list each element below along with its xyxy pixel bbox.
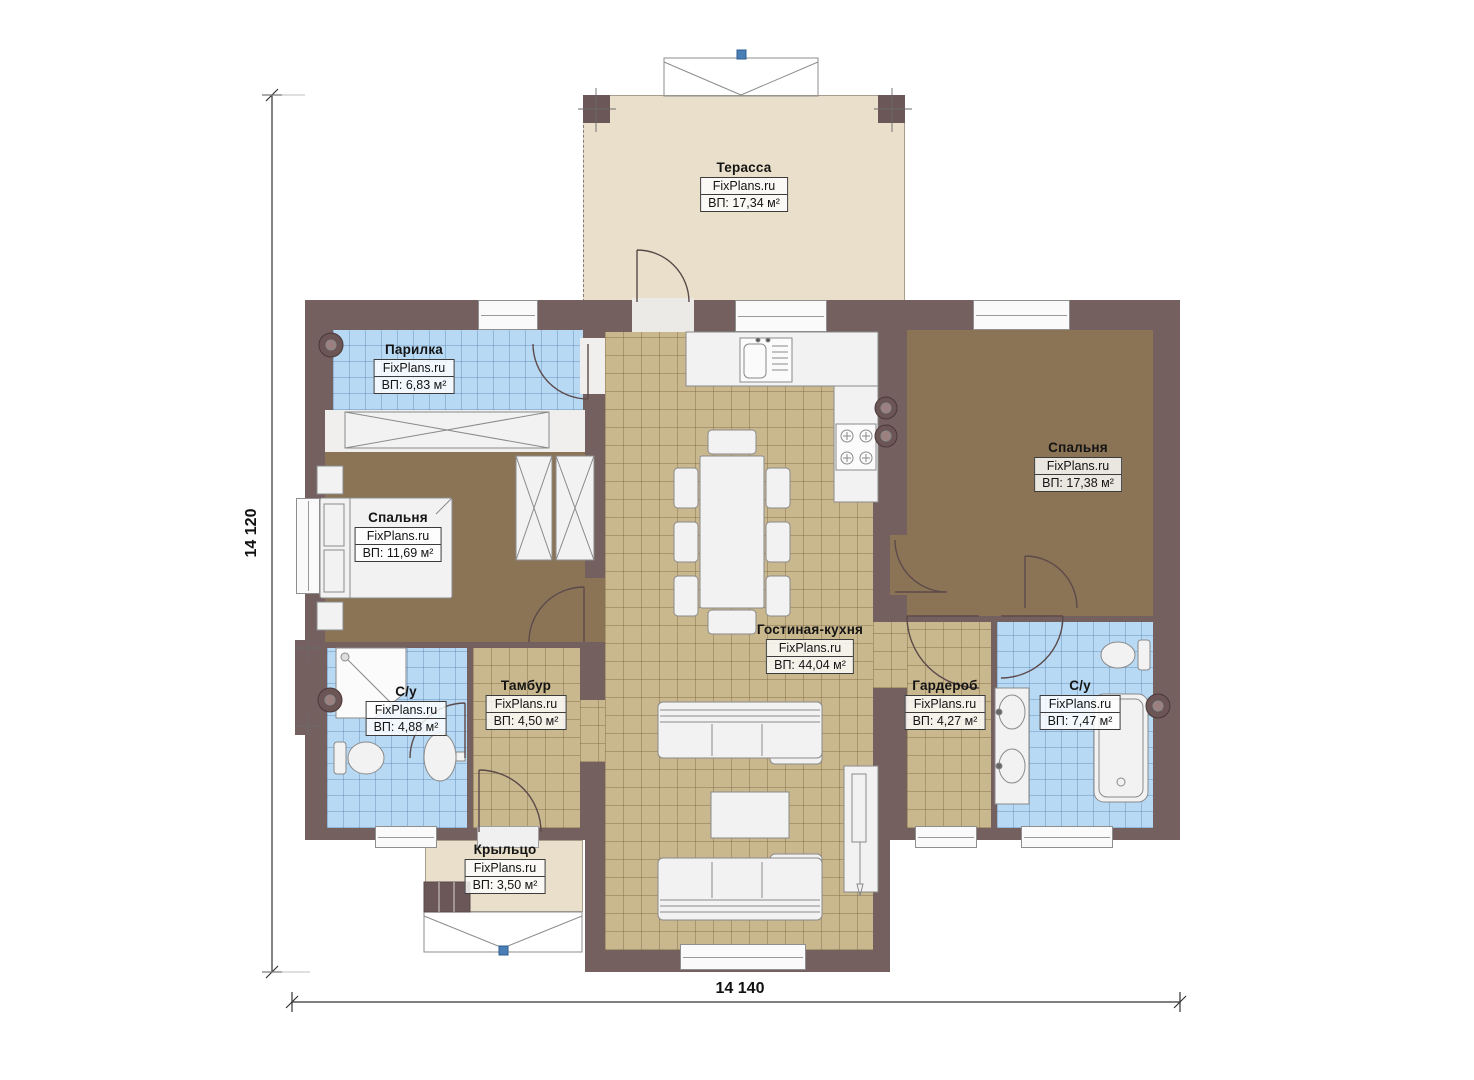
room-name: Крыльцо [465, 842, 546, 857]
room-name: Парилка [374, 342, 455, 357]
room-area: ВП: 7,47 м² [1041, 712, 1120, 729]
terrace-pillar-left [583, 95, 610, 123]
window-living-bottom [680, 944, 806, 970]
wall-protrusion [295, 640, 325, 735]
room-area: ВП: 3,50 м² [466, 876, 545, 893]
porch-canopy [424, 912, 582, 955]
room-area: ВП: 17,34 м² [701, 194, 787, 211]
room-label-bathroom-right: С/у FixPlans.ru ВП: 7,47 м² [1040, 678, 1121, 730]
room-label-tambour: Тамбур FixPlans.ru ВП: 4,50 м² [486, 678, 567, 730]
opening-steam-corridor [580, 338, 605, 394]
window-bathroom-right [1021, 826, 1113, 848]
window-wardrobe [915, 826, 977, 848]
room-tambour [473, 648, 580, 828]
window-kitchen [735, 300, 827, 332]
room-label-bathroom-left: С/у FixPlans.ru ВП: 4,88 м² [366, 684, 447, 736]
opening-bedroom-left-door [580, 578, 605, 642]
floor-plan: 14 120 14 140 Терасса FixPlans.ru ВП: 17… [0, 0, 1474, 1080]
opening-bedroom-right-door [890, 535, 907, 595]
brand-watermark: FixPlans.ru [356, 528, 441, 544]
brand-watermark: FixPlans.ru [466, 860, 545, 876]
opening-tambour-living [580, 700, 605, 762]
room-area: ВП: 11,69 м² [356, 544, 441, 561]
room-name: Гостиная-кухня [757, 622, 863, 637]
room-name: Спальня [355, 510, 442, 525]
room-name: С/у [366, 684, 447, 699]
brand-watermark: FixPlans.ru [367, 702, 446, 718]
terrace-door-opening [632, 298, 694, 332]
room-label-wardrobe: Гардероб FixPlans.ru ВП: 4,27 м² [905, 678, 986, 730]
room-bathroom-left [327, 648, 467, 828]
window-bathroom-left [375, 826, 437, 848]
terrace-pillar-right [878, 95, 905, 123]
room-name: Терасса [700, 160, 788, 175]
window-bedroom-right [973, 300, 1070, 330]
room-label-bedroom-right: Спальня FixPlans.ru ВП: 17,38 м² [1034, 440, 1122, 492]
room-area: ВП: 44,04 м² [767, 656, 853, 673]
brand-watermark: FixPlans.ru [767, 640, 853, 656]
dimension-height-label: 14 120 [243, 503, 261, 563]
window-top-left [478, 300, 538, 330]
room-area: ВП: 17,38 м² [1035, 474, 1121, 491]
brand-watermark: FixPlans.ru [701, 178, 787, 194]
window-bedroom-left [296, 498, 320, 594]
brand-watermark: FixPlans.ru [1035, 458, 1121, 474]
room-area: ВП: 4,27 м² [906, 712, 985, 729]
opening-hall-living [873, 622, 907, 688]
room-area: ВП: 6,83 м² [375, 376, 454, 393]
room-label-steam: Парилка FixPlans.ru ВП: 6,83 м² [374, 342, 455, 394]
room-label-living-kitchen: Гостиная-кухня FixPlans.ru ВП: 44,04 м² [757, 622, 863, 674]
room-area: ВП: 4,88 м² [367, 718, 446, 735]
brand-watermark: FixPlans.ru [1041, 696, 1120, 712]
terrace-canopy [664, 50, 818, 96]
room-name: Тамбур [486, 678, 567, 693]
room-name: Спальня [1034, 440, 1122, 455]
brand-watermark: FixPlans.ru [375, 360, 454, 376]
sauna-zone [325, 410, 585, 452]
room-area: ВП: 4,50 м² [487, 712, 566, 729]
room-label-terrace: Терасса FixPlans.ru ВП: 17,34 м² [700, 160, 788, 212]
brand-watermark: FixPlans.ru [906, 696, 985, 712]
room-name: С/у [1040, 678, 1121, 693]
room-label-bedroom-left: Спальня FixPlans.ru ВП: 11,69 м² [355, 510, 442, 562]
brand-watermark: FixPlans.ru [487, 696, 566, 712]
room-label-porch: Крыльцо FixPlans.ru ВП: 3,50 м² [465, 842, 546, 894]
room-steam [333, 330, 583, 410]
room-name: Гардероб [905, 678, 986, 693]
dimension-width-label: 14 140 [700, 980, 780, 998]
